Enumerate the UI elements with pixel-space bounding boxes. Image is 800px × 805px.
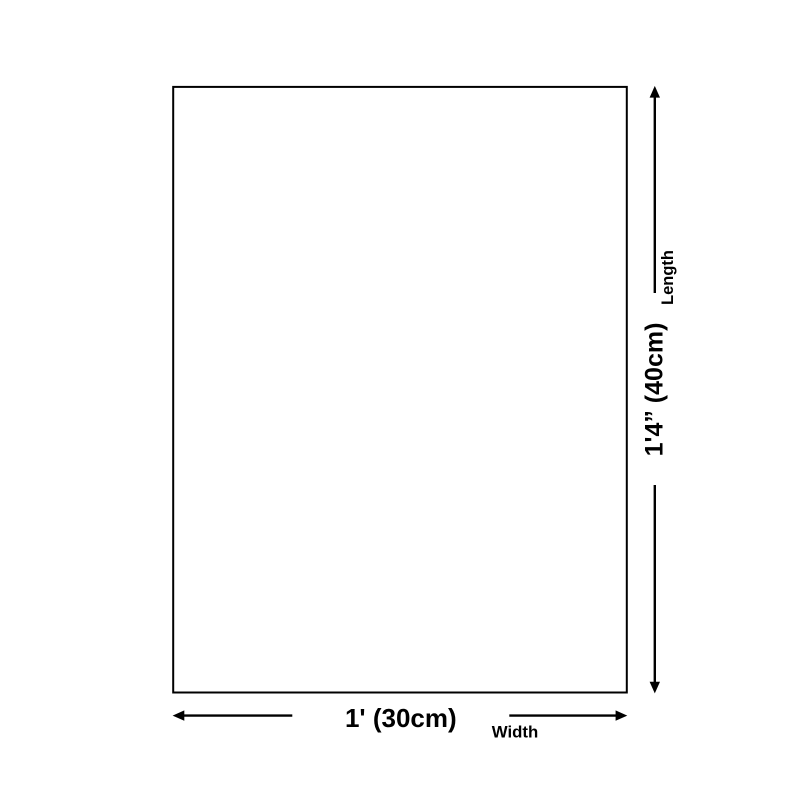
svg-text:Width: Width <box>492 722 538 741</box>
svg-text:1' (30cm): 1' (30cm) <box>345 703 457 733</box>
svg-text:1'4” (40cm): 1'4” (40cm) <box>640 323 668 457</box>
svg-text:Length: Length <box>659 250 677 305</box>
